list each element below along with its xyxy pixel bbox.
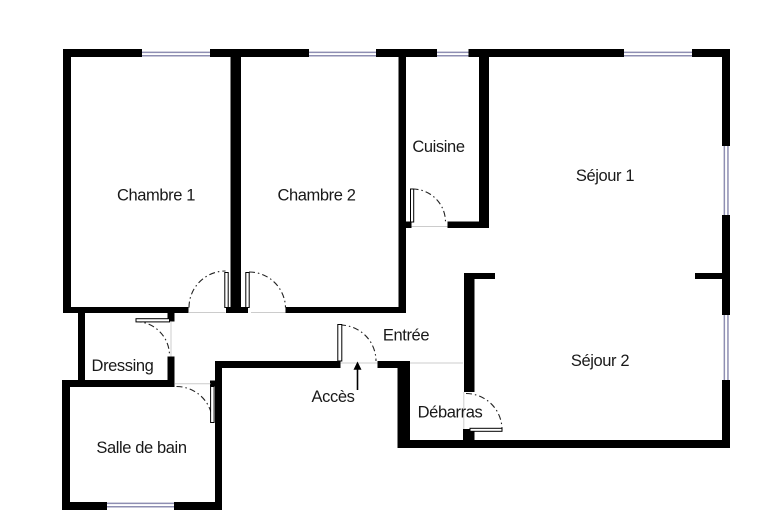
svg-text:Chambre 2: Chambre 2 <box>277 187 355 205</box>
svg-text:Séjour 2: Séjour 2 <box>571 352 629 370</box>
svg-text:Chambre 1: Chambre 1 <box>117 187 195 205</box>
svg-text:Entrée: Entrée <box>383 327 429 345</box>
svg-text:Salle de bain: Salle de bain <box>96 439 186 457</box>
svg-text:Dressing: Dressing <box>92 357 154 375</box>
svg-text:Séjour 1: Séjour 1 <box>576 167 634 185</box>
svg-text:Cuisine: Cuisine <box>412 138 464 156</box>
svg-text:Accès: Accès <box>312 388 355 406</box>
svg-text:Débarras: Débarras <box>418 404 483 422</box>
